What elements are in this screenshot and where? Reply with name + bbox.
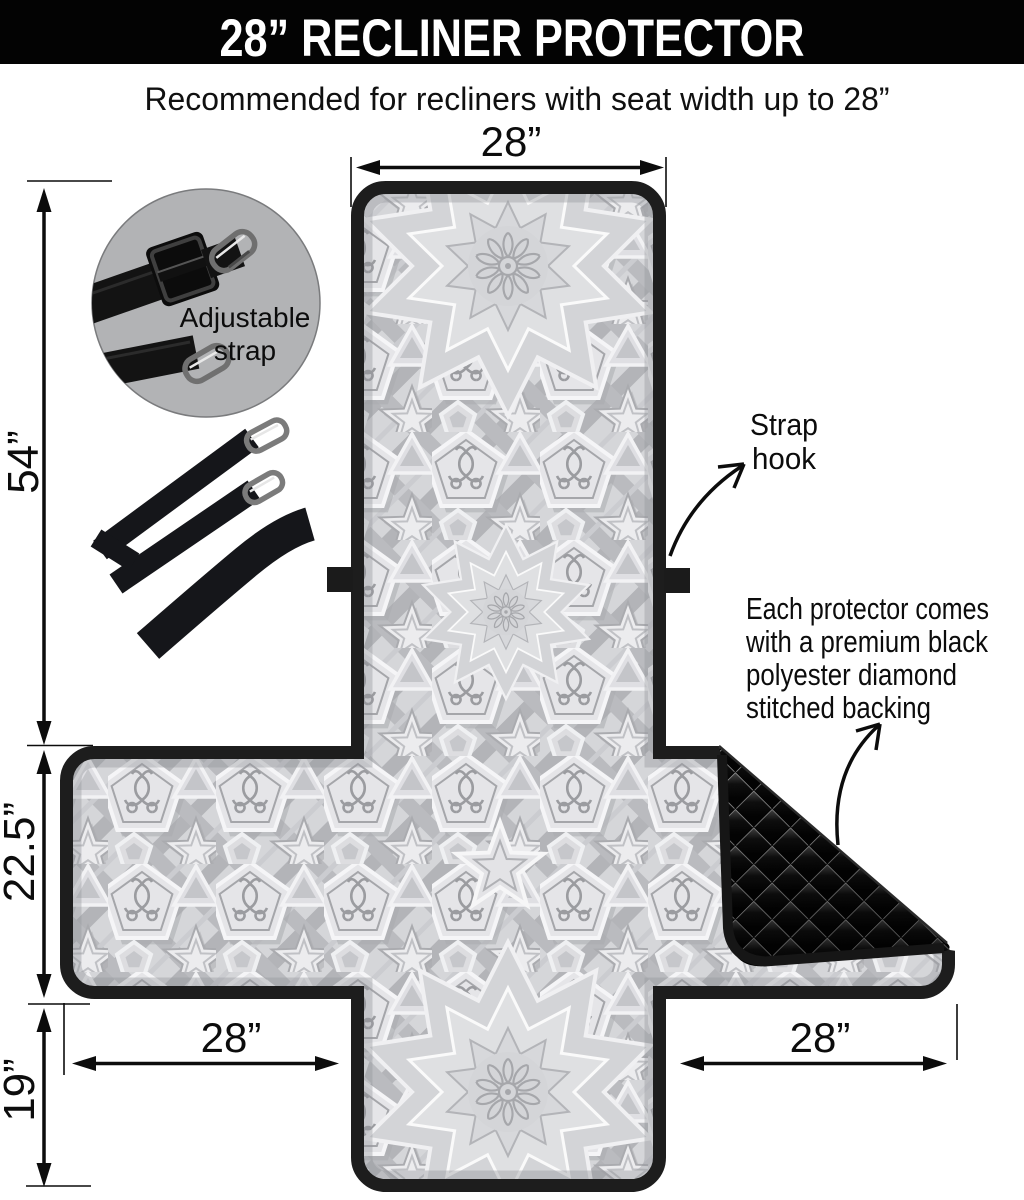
svg-text:28” RECLINER PROTECTOR: 28” RECLINER PROTECTOR: [220, 9, 805, 68]
svg-text:19”: 19”: [0, 1058, 44, 1122]
svg-text:hook: hook: [752, 441, 816, 476]
svg-text:22.5”: 22.5”: [0, 802, 44, 902]
svg-text:Each protector comes: Each protector comes: [746, 591, 989, 626]
svg-text:strap: strap: [214, 335, 276, 366]
svg-text:Recommended for recliners with: Recommended for recliners with seat widt…: [145, 81, 890, 117]
svg-text:54”: 54”: [0, 430, 48, 494]
svg-text:28”: 28”: [201, 1014, 262, 1061]
svg-text:polyester diamond: polyester diamond: [746, 657, 957, 692]
svg-text:28”: 28”: [790, 1014, 851, 1061]
svg-text:stitched backing: stitched backing: [746, 690, 931, 725]
svg-text:with a premium black: with a premium black: [745, 624, 988, 659]
svg-text:Strap: Strap: [750, 407, 818, 442]
svg-text:28”: 28”: [481, 118, 542, 165]
svg-text:Adjustable: Adjustable: [180, 302, 311, 333]
